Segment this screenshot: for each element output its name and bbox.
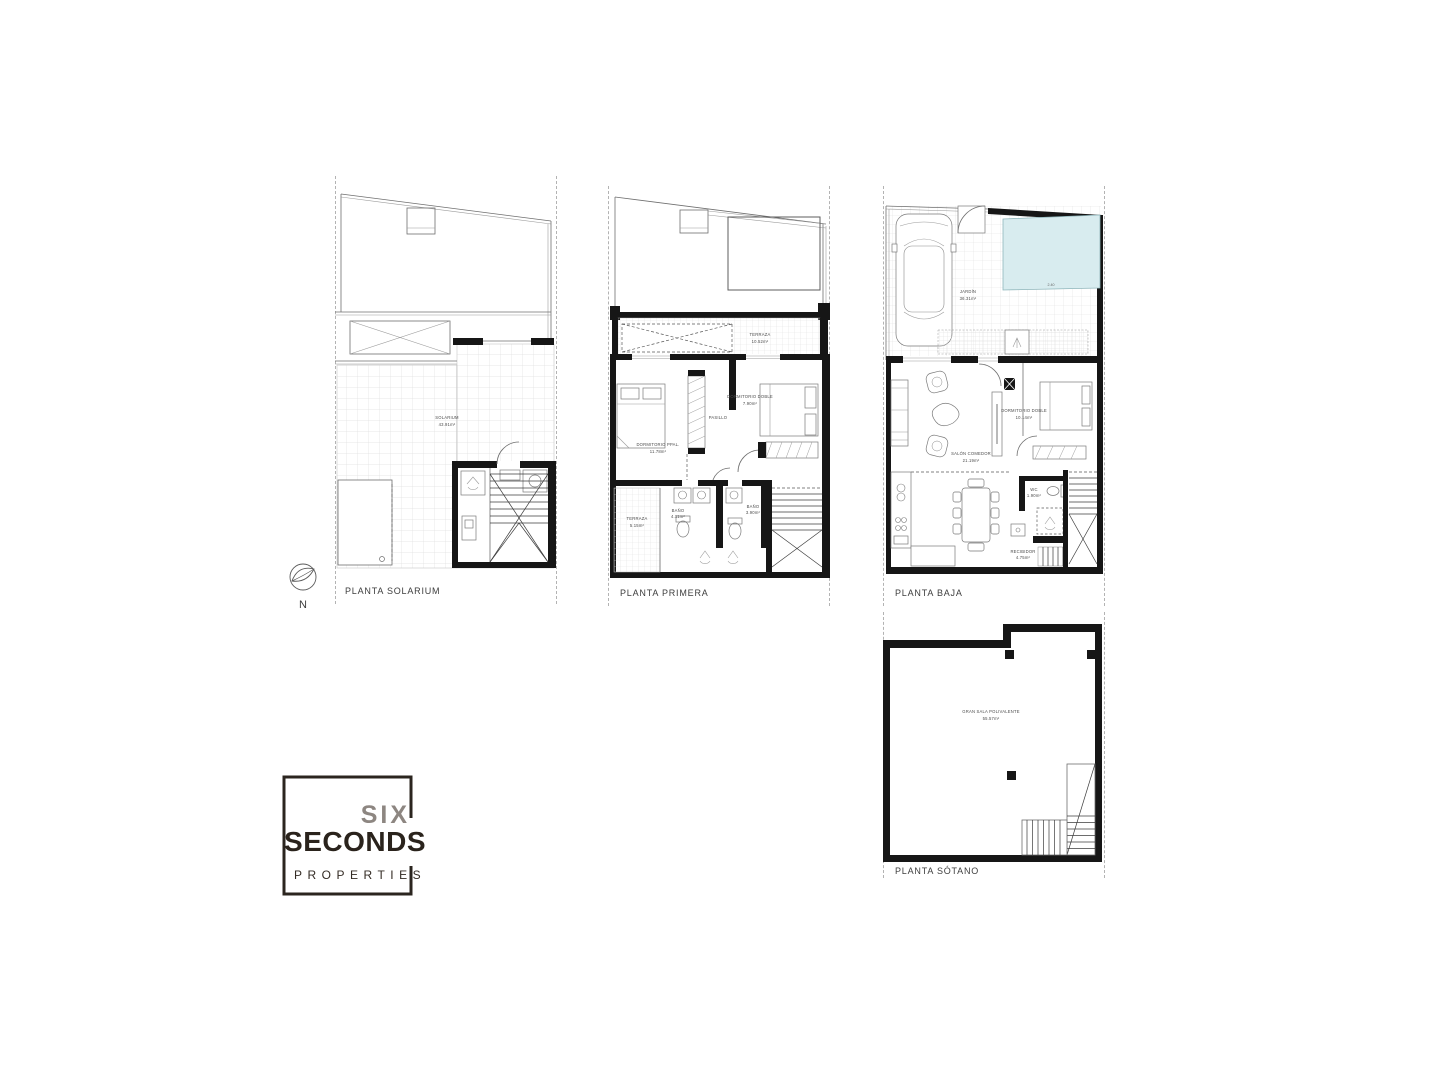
washbasin-icon (1011, 524, 1025, 536)
window (903, 356, 998, 363)
svg-text:DORMITORIO DOBLE: DORMITORIO DOBLE (1001, 408, 1047, 413)
roof-outline (610, 197, 830, 320)
kitchen-counter (891, 472, 1009, 566)
north-label: N (299, 599, 307, 611)
logo-word-seconds: SECONDS (284, 826, 426, 858)
svg-text:BAÑO: BAÑO (747, 504, 760, 509)
room-label: SOLARIUM (435, 415, 459, 420)
svg-text:JARDÍN: JARDÍN (960, 289, 976, 294)
terrace: TERRAZA 10.52m² (612, 312, 828, 356)
svg-text:55.57m²: 55.57m² (983, 716, 1000, 721)
north-arrow-icon: N (283, 560, 323, 612)
wc: WC 1.90m² (1019, 476, 1067, 511)
logo-word-properties: PROPERTIES (294, 868, 426, 882)
floor-plan-sotano: GRAN SALA POLIVALENTE 55.57m² (883, 616, 1105, 868)
plan-caption-baja: PLANTA BAJA (895, 588, 963, 598)
bed-double (760, 384, 818, 436)
shower-icon (461, 471, 485, 495)
svg-text:21.19m²: 21.19m² (963, 458, 980, 463)
svg-text:10.14m²: 10.14m² (1016, 415, 1033, 420)
bed-master (617, 384, 665, 448)
room-area-label: 43.91m² (439, 422, 456, 427)
bathroom-1: BAÑO 4.11m² (671, 488, 710, 537)
wardrobe-hatched (1033, 446, 1086, 459)
svg-text:DORMITORIO PPAL.: DORMITORIO PPAL. (636, 442, 679, 447)
svg-text:GRAN SALA POLIVALENTE: GRAN SALA POLIVALENTE (962, 709, 1019, 714)
tv-unit (992, 392, 1002, 456)
svg-text:10.52m²: 10.52m² (752, 339, 769, 344)
roof-outline (335, 194, 551, 341)
entry-step (958, 206, 985, 233)
svg-text:4.75m²: 4.75m² (1016, 555, 1031, 560)
bed-double (1040, 382, 1092, 430)
floor-plan-primera: TERRAZA 10.52m² (608, 188, 830, 578)
paved-band (938, 330, 1088, 354)
svg-text:DORMITORIO DOBLE: DORMITORIO DOBLE (727, 394, 773, 399)
plan-caption-primera: PLANTA PRIMERA (620, 588, 709, 598)
shower-icon (1037, 508, 1063, 534)
svg-text:7.90m²: 7.90m² (743, 401, 758, 406)
svg-text:3.90m²: 3.90m² (746, 510, 761, 515)
plan-caption-solarium: PLANTA SOLARIUM (345, 586, 440, 596)
svg-text:TERRAZA: TERRAZA (627, 516, 648, 521)
skylight-box (335, 321, 457, 364)
bathroom-2: BAÑO 3.90m² (726, 488, 761, 539)
plan-caption-sotano: PLANTA SÓTANO (895, 866, 979, 876)
svg-text:36.31m²: 36.31m² (960, 296, 977, 301)
dining-table (953, 479, 999, 551)
car-icon (892, 214, 956, 346)
wardrobe-hatched (758, 442, 818, 458)
hall: RECIBIDOR 4.75m² (1010, 547, 1067, 566)
stairs (1063, 470, 1097, 567)
svg-text:BAÑO: BAÑO (672, 508, 685, 513)
floor-plan-sheet: SOLARIUM 43.91m² (0, 0, 1440, 1080)
svg-text:WC: WC (1030, 487, 1037, 492)
svg-text:2.40: 2.40 (1048, 283, 1055, 287)
closet-hatched (688, 370, 705, 454)
balcony (338, 480, 392, 565)
stairs (1022, 764, 1095, 855)
stairs (766, 480, 822, 578)
svg-text:TERRAZA: TERRAZA (750, 332, 771, 337)
floor-plan-solarium: SOLARIUM 43.91m² (335, 178, 557, 578)
brand-logo: SIX SECONDS PROPERTIES (280, 773, 420, 901)
coffee-table (932, 403, 959, 425)
terrace-lower: TERRAZA 5.15m² (614, 488, 660, 572)
svg-text:PASILLO: PASILLO (709, 415, 728, 420)
svg-text:5.15m²: 5.15m² (630, 523, 645, 528)
svg-text:11.78m²: 11.78m² (650, 449, 667, 454)
cabinet-icon (462, 516, 476, 540)
svg-text:SALÓN COMEDOR: SALÓN COMEDOR (951, 451, 991, 456)
svg-text:1.90m²: 1.90m² (1027, 493, 1042, 498)
svg-text:RECIBIDOR: RECIBIDOR (1010, 549, 1035, 554)
floor-plan-baja: 2.40 JARDÍN 36.31m² (883, 188, 1105, 578)
sofa (891, 380, 908, 446)
svg-text:4.11m²: 4.11m² (671, 514, 685, 519)
shower-icon (700, 551, 738, 564)
pool: 2.40 (1003, 215, 1100, 290)
